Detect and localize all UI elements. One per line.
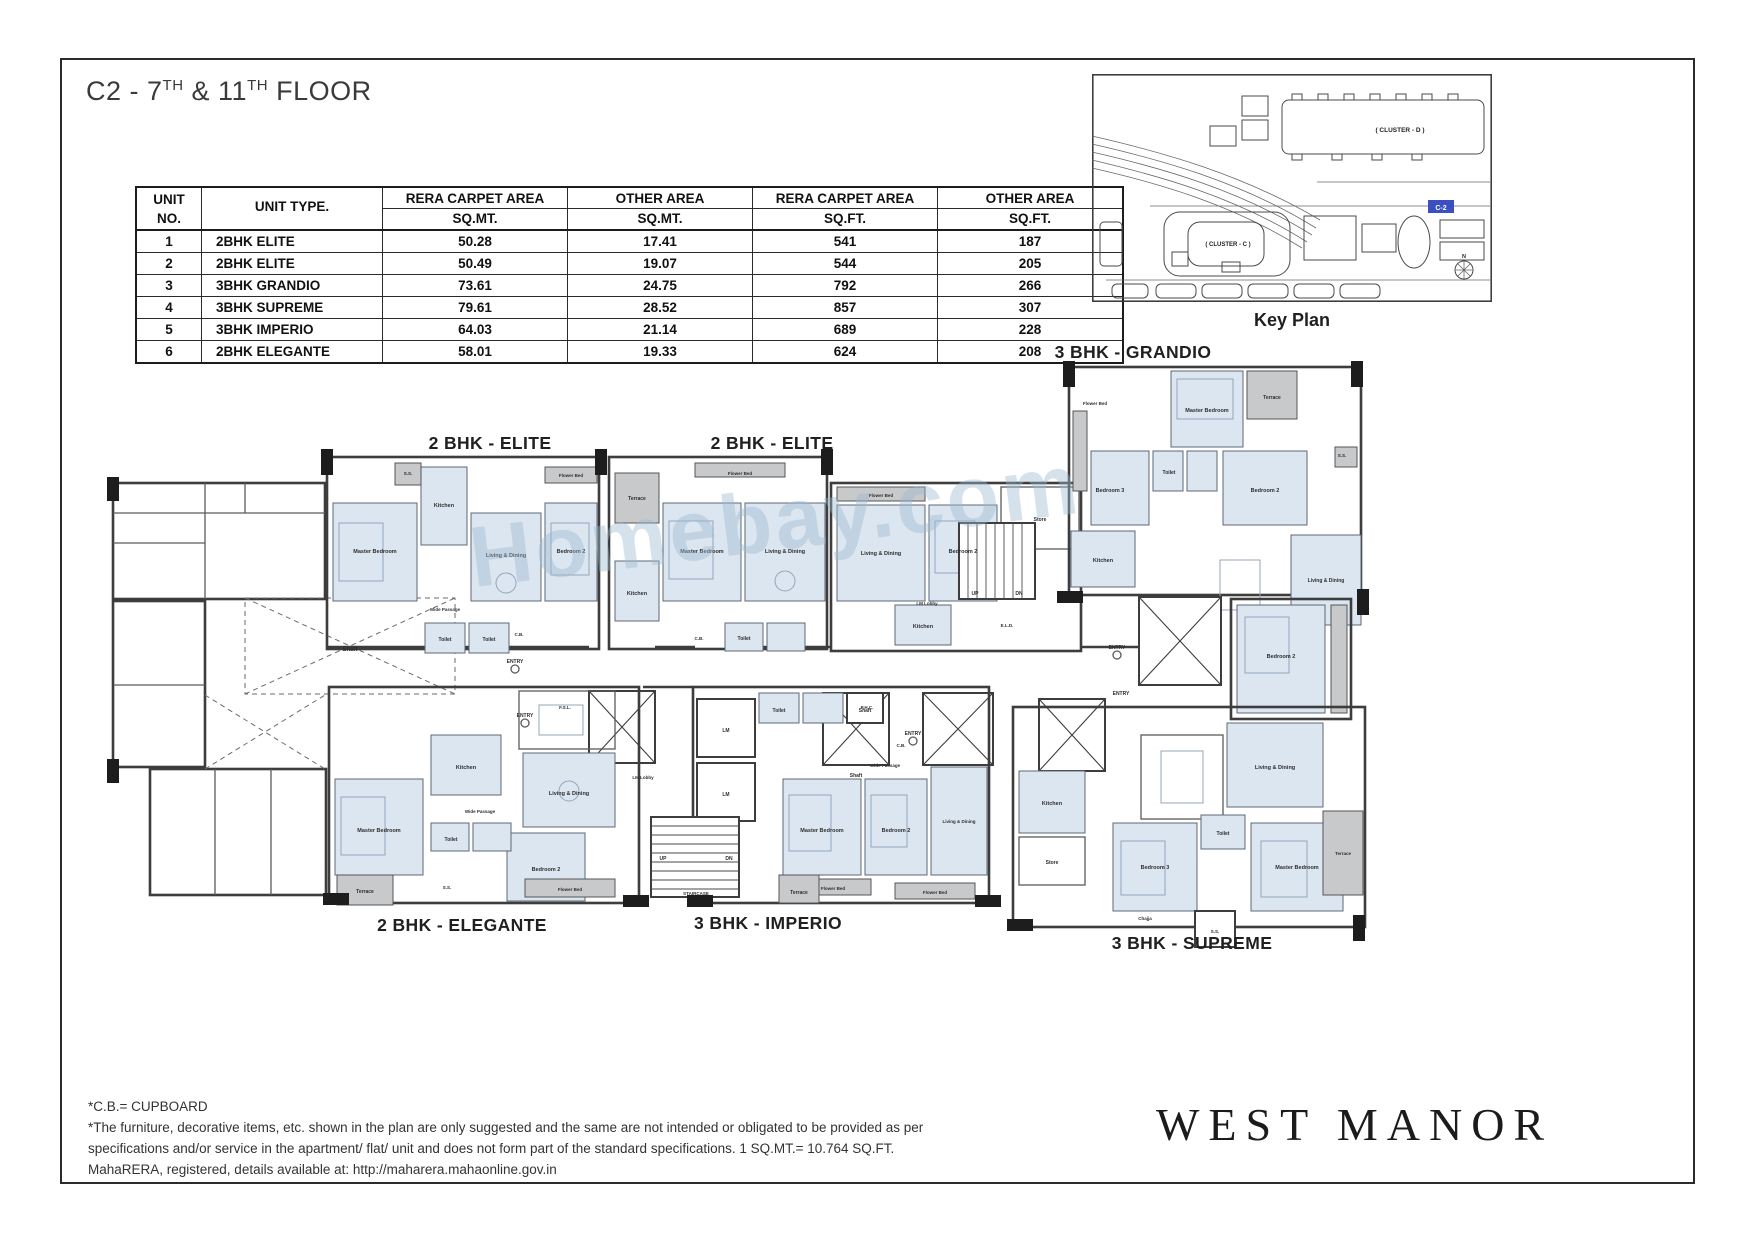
room-label: Bedroom 2 xyxy=(1251,488,1280,494)
room-label: Bedroom 3 xyxy=(1141,865,1170,871)
room-label: Toilet xyxy=(1163,470,1176,476)
room-label: Shaft xyxy=(343,647,358,653)
room-label: Terrace xyxy=(790,890,808,896)
unit-label-elite-2: 2 BHK - ELITE xyxy=(711,433,834,454)
area-cell: 79.61 xyxy=(383,297,568,319)
room-label: Kitchen xyxy=(434,503,455,509)
room-label: E.L.D. xyxy=(1001,623,1014,628)
room-label: Kitchen xyxy=(1093,558,1114,564)
room-label: Flower Bed xyxy=(1083,401,1108,406)
title-part: C2 - 7 xyxy=(86,76,163,106)
area-table: UNIT NO. UNIT TYPE. RERA CARPET AREA SQ.… xyxy=(135,186,1124,364)
room-label: S.S. xyxy=(1338,453,1347,458)
cluster-c-label: ( CLUSTER - C ) xyxy=(1205,242,1250,248)
area-cell: 28.52 xyxy=(568,297,753,319)
room-label: Flower Bed xyxy=(923,890,948,895)
table-row: 53BHK IMPERIO64.0321.14689228 xyxy=(136,319,1123,341)
area-cell: 19.07 xyxy=(568,253,753,275)
area-cell: 4 xyxy=(136,297,202,319)
unit-3bhk-grandio xyxy=(1069,367,1361,625)
room-label: S.S. xyxy=(404,471,413,476)
room-label: LM Lobby xyxy=(632,775,654,780)
room-label: Kitchen xyxy=(913,624,934,630)
footer-notes: *C.B.= CUPBOARD *The furniture, decorati… xyxy=(88,1096,923,1180)
area-table-body: 12BHK ELITE50.2817.4154118722BHK ELITE50… xyxy=(136,230,1123,363)
room-label: Flower Bed xyxy=(821,886,846,891)
room-label: Terrace xyxy=(1335,851,1351,856)
room-label: ENTRY xyxy=(507,659,524,665)
room-label: Terrace xyxy=(356,889,374,895)
page-title: C2 - 7TH & 11TH FLOOR xyxy=(86,76,372,107)
room-label: Flower Bed xyxy=(559,473,584,478)
col-unit-no: UNIT NO. xyxy=(136,187,202,230)
table-row: 43BHK SUPREME79.6128.52857307 xyxy=(136,297,1123,319)
room-label: Bedroom 2 xyxy=(1267,654,1296,660)
room-label: LM xyxy=(722,728,729,734)
room-label: Toilet xyxy=(773,708,786,714)
room-label: Kitchen xyxy=(1042,801,1063,807)
title-sup: TH xyxy=(163,77,184,94)
area-cell: 50.49 xyxy=(383,253,568,275)
area-cell: 792 xyxy=(753,275,938,297)
room-label: Wide Passage xyxy=(430,607,461,612)
unit-label-imperio: 3 BHK - IMPERIO xyxy=(694,913,842,934)
unit-c2-marker: C-2 xyxy=(1428,200,1454,213)
area-cell: 73.61 xyxy=(383,275,568,297)
area-cell: 17.41 xyxy=(568,230,753,253)
room-label: Master Bedroom xyxy=(353,549,397,555)
area-cell: 21.14 xyxy=(568,319,753,341)
key-plan-caption: Key Plan xyxy=(1092,310,1492,331)
room-label: C.B. xyxy=(695,636,704,641)
table-row: 22BHK ELITE50.4919.07544205 xyxy=(136,253,1123,275)
compass-n-label: N xyxy=(1462,254,1466,260)
area-cell: 2BHK ELITE xyxy=(202,253,383,275)
room-label: Wide Passage xyxy=(465,809,496,814)
room-label: Master Bedroom xyxy=(1275,865,1319,871)
room-label: Toilet xyxy=(1217,831,1230,837)
room-label: Living & Dining xyxy=(549,791,589,797)
brand-logo: WEST MANOR xyxy=(1156,1098,1553,1151)
site-buildings xyxy=(1100,216,1484,298)
note-line: *C.B.= CUPBOARD xyxy=(88,1096,923,1117)
key-plan-map: ( CLUSTER - D ) ( CLUSTER - C ) xyxy=(1092,74,1492,302)
title-sup: TH xyxy=(247,77,268,94)
area-cell: 541 xyxy=(753,230,938,253)
room-label: Flower Bed xyxy=(558,887,583,892)
room-label: Terrace xyxy=(1263,395,1281,401)
room-label: Chajja xyxy=(1138,916,1152,921)
note-line: MahaRERA, registered, details available … xyxy=(88,1159,923,1180)
area-table-header: UNIT NO. UNIT TYPE. RERA CARPET AREA SQ.… xyxy=(136,187,1123,230)
room-label: ENTRY xyxy=(517,713,534,719)
area-cell: 3 xyxy=(136,275,202,297)
area-cell: 64.03 xyxy=(383,319,568,341)
title-part: FLOOR xyxy=(268,76,372,106)
room-label: Master Bedroom xyxy=(1185,408,1229,414)
area-cell: 3BHK GRANDIO xyxy=(202,275,383,297)
room-label: S.S. xyxy=(443,885,452,890)
room-label: C.B. xyxy=(515,632,524,637)
room-label: UP xyxy=(660,856,668,862)
area-cell: 3BHK SUPREME xyxy=(202,297,383,319)
unit-c2-marker-label: C-2 xyxy=(1435,205,1446,212)
area-cell: 1 xyxy=(136,230,202,253)
unit-label-grandio: 3 BHK - GRANDIO xyxy=(1055,342,1212,363)
area-cell: 689 xyxy=(753,319,938,341)
room-label: Bedroom 2 xyxy=(882,828,911,834)
note-line: specifications and/or service in the apa… xyxy=(88,1138,923,1159)
room-label: Toilet xyxy=(439,637,452,643)
room-label: ENTRY xyxy=(905,731,922,737)
room-label: C.B. xyxy=(897,743,906,748)
room-label: DN xyxy=(1015,591,1023,597)
area-cell: 24.75 xyxy=(568,275,753,297)
floor-plan-sheet: C2 - 7TH & 11TH FLOOR UNIT NO. UNIT TYPE… xyxy=(0,0,1754,1241)
col-unit-type: UNIT TYPE. xyxy=(202,187,383,230)
room-label: Bedroom 2 xyxy=(532,867,561,873)
title-part: & 11 xyxy=(184,76,248,106)
room-label: LM xyxy=(722,792,729,798)
room-label: DN xyxy=(725,856,733,862)
room-label: Kitchen xyxy=(456,765,477,771)
cluster-d-buildings: ( CLUSTER - D ) xyxy=(1210,94,1484,160)
room-label: Master Bedroom xyxy=(800,828,844,834)
room-label: Master Bedroom xyxy=(357,828,401,834)
unit-label-elite-1: 2 BHK - ELITE xyxy=(429,433,552,454)
area-cell: 2 xyxy=(136,253,202,275)
area-cell: 544 xyxy=(753,253,938,275)
area-cell: 857 xyxy=(753,297,938,319)
room-label: Living & Dining xyxy=(1255,765,1295,771)
unit-label-supreme: 3 BHK - SUPREME xyxy=(1112,933,1273,954)
table-row: 33BHK GRANDIO73.6124.75792266 xyxy=(136,275,1123,297)
unit-label-elegante: 2 BHK - ELEGANTE xyxy=(377,915,547,936)
room-label: STAIRCASE xyxy=(683,891,709,896)
room-label: Toilet xyxy=(483,637,496,643)
note-line: *The furniture, decorative items, etc. s… xyxy=(88,1117,923,1138)
room-label: Wide Passage xyxy=(870,763,901,768)
room-label: Bedroom 3 xyxy=(1096,488,1125,494)
room-label: Shaft xyxy=(859,708,872,714)
room-label: Living & Dining xyxy=(1308,578,1345,584)
room-label: ENTRY xyxy=(1109,645,1126,651)
room-label: Toilet xyxy=(738,636,751,642)
col-rera-sqmt: RERA CARPET AREA SQ.MT. xyxy=(383,187,568,230)
room-label: Store xyxy=(1046,860,1059,866)
table-row: 12BHK ELITE50.2817.41541187 xyxy=(136,230,1123,253)
room-label: Toilet xyxy=(445,837,458,843)
area-cell: 3BHK IMPERIO xyxy=(202,319,383,341)
compass-icon: N xyxy=(1455,254,1473,279)
area-cell: 50.28 xyxy=(383,230,568,253)
area-cell: 2BHK ELITE xyxy=(202,230,383,253)
area-cell: 5 xyxy=(136,319,202,341)
room-label: ENTRY xyxy=(1113,691,1130,697)
room-label: UP xyxy=(972,591,980,597)
room-label: Bedroom 2 xyxy=(949,549,978,555)
room-label: Kitchen xyxy=(627,591,648,597)
room-label: F.S.L. xyxy=(559,705,571,710)
room-label: LM Lobby xyxy=(916,601,938,606)
room-label: Living & Dining xyxy=(943,819,976,824)
col-other-sqmt: OTHER AREA SQ.MT. xyxy=(568,187,753,230)
cluster-d-label: ( CLUSTER - D ) xyxy=(1375,127,1424,134)
room-label: Shaft xyxy=(850,773,863,779)
col-rera-sqft: RERA CARPET AREA SQ.FT. xyxy=(753,187,938,230)
